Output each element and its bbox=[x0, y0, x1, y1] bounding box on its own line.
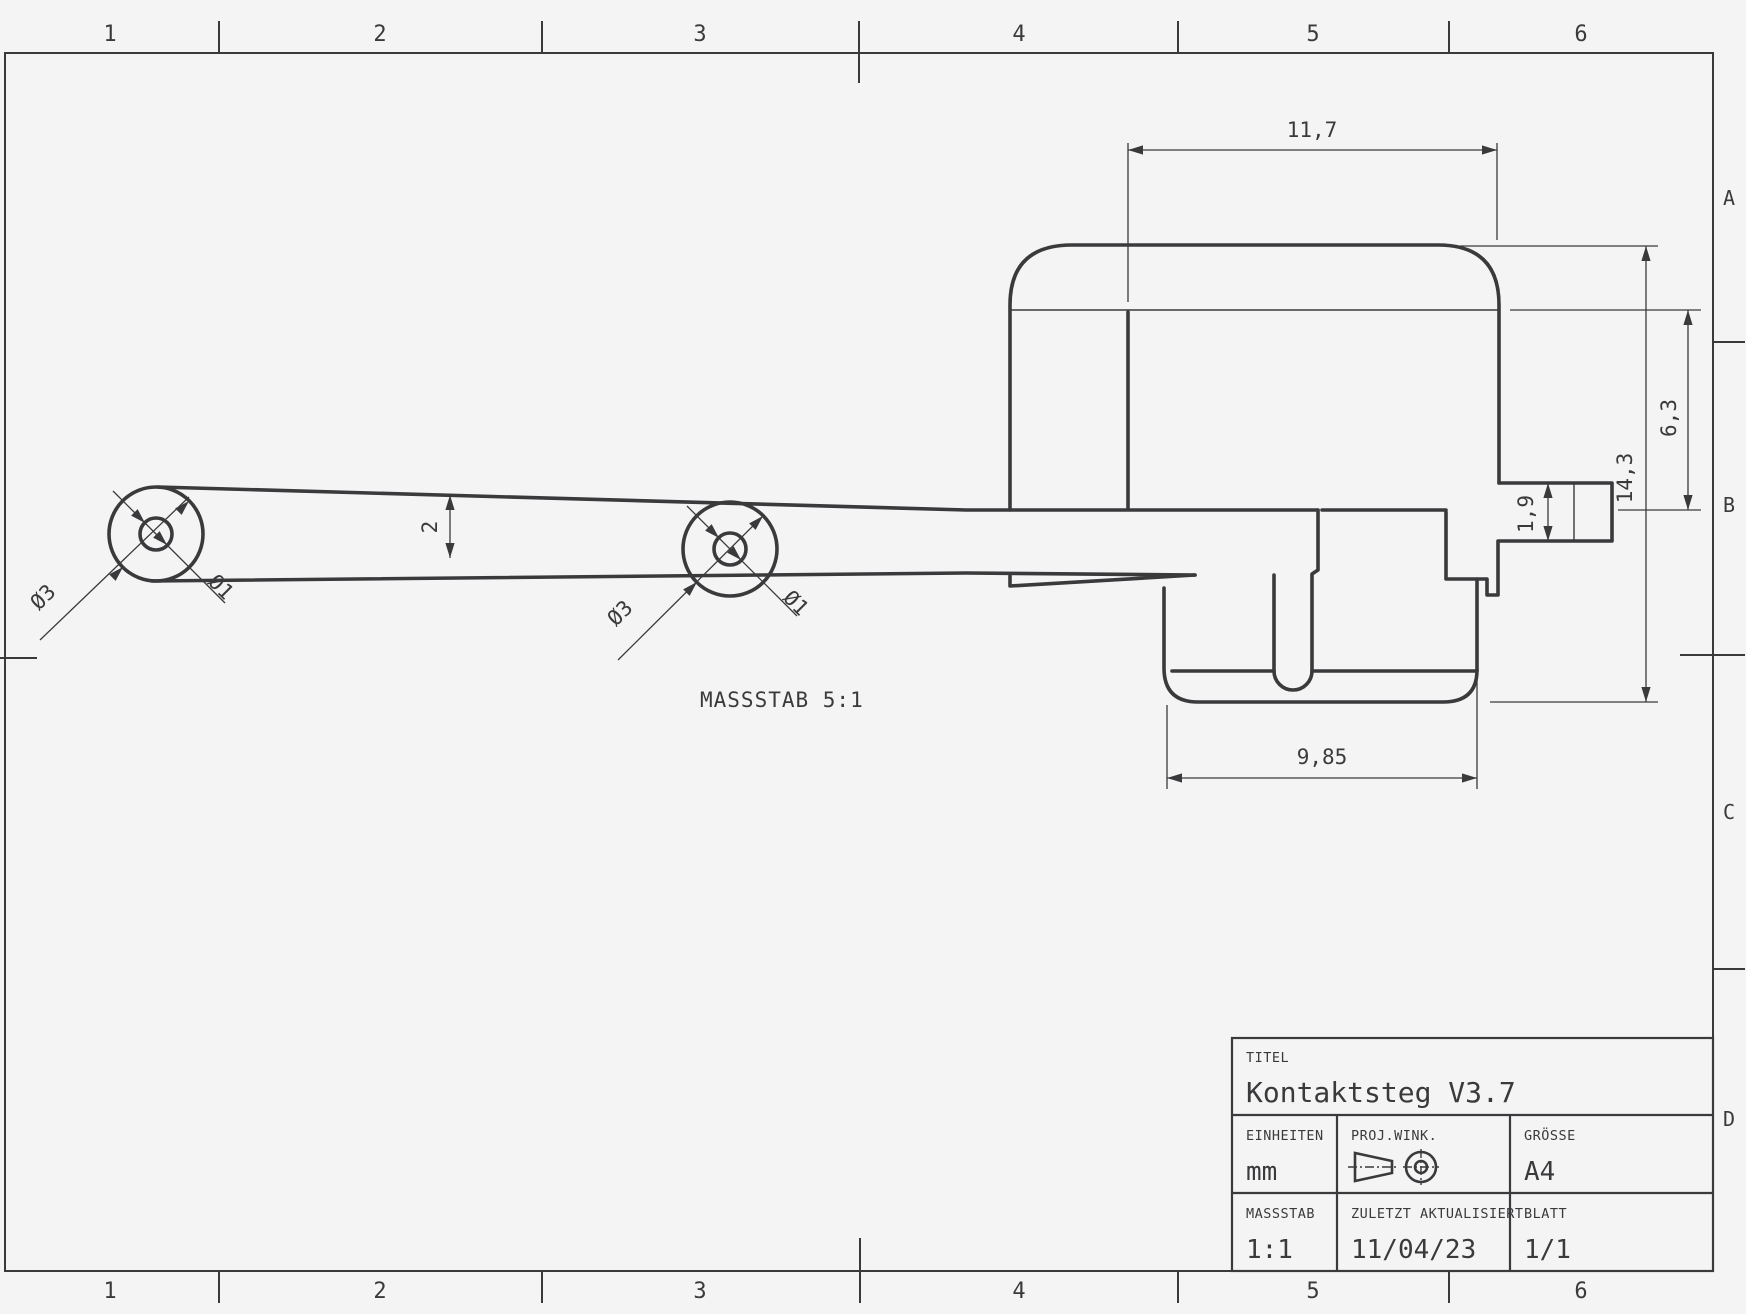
zone-col-label: 2 bbox=[373, 22, 386, 47]
zone-col-label: 5 bbox=[1306, 22, 1319, 47]
zone-col-label: 4 bbox=[1012, 22, 1025, 47]
zone-labels-right: A B C D bbox=[1723, 186, 1735, 1131]
view-scale-note: MASSSTAB 5:1 bbox=[700, 688, 864, 712]
arm-top-edge bbox=[158, 487, 1446, 510]
center-slot bbox=[1274, 510, 1318, 690]
part-thin-edges bbox=[1010, 310, 1574, 541]
dim-overall-height-label: 14,3 bbox=[1613, 453, 1637, 504]
flange-outline bbox=[1164, 588, 1477, 702]
housing-upper-outline bbox=[1010, 245, 1499, 510]
einheiten-value: mm bbox=[1246, 1157, 1277, 1187]
part-outline bbox=[109, 245, 1612, 702]
zone-col-label: 3 bbox=[693, 1279, 706, 1304]
zone-col-label: 6 bbox=[1574, 1279, 1587, 1304]
massstab-value: 1:1 bbox=[1246, 1235, 1293, 1265]
titel-label: TITEL bbox=[1246, 1050, 1289, 1066]
zone-row-label: C bbox=[1723, 800, 1735, 824]
arm-bottom-edge bbox=[152, 573, 1195, 581]
blatt-label: BLATT bbox=[1524, 1206, 1567, 1222]
zone-col-label: 2 bbox=[373, 1279, 386, 1304]
boss1-dia3-leader bbox=[40, 497, 189, 640]
zone-row-label: A bbox=[1723, 186, 1735, 210]
boss1-inner-dia-label: Ø1 bbox=[204, 570, 239, 605]
zone-col-label: 1 bbox=[103, 1279, 116, 1304]
border-frame bbox=[0, 21, 1745, 1303]
dim-tab-height-label: 1,9 bbox=[1514, 495, 1538, 533]
groesse-label: GRÖSSE bbox=[1524, 1126, 1576, 1144]
boss1-outer-dia-label: Ø3 bbox=[26, 580, 61, 615]
dim-arm-thickness-label: 2 bbox=[418, 521, 442, 534]
zone-col-label: 6 bbox=[1574, 22, 1587, 47]
zone-col-label: 4 bbox=[1012, 1279, 1025, 1304]
einheiten-label: EINHEITEN bbox=[1246, 1128, 1324, 1144]
zone-col-label: 3 bbox=[693, 22, 706, 47]
zone-col-label: 1 bbox=[103, 22, 116, 47]
dim-11-7-lines bbox=[1128, 143, 1497, 302]
massstab-label: MASSSTAB bbox=[1246, 1206, 1315, 1222]
projection-angle-icon bbox=[1348, 1149, 1439, 1185]
boss2-inner-dia-label: Ø1 bbox=[779, 586, 814, 621]
updated-label: ZULETZT AKTUALISIERT bbox=[1351, 1206, 1524, 1222]
zone-row-label: D bbox=[1723, 1107, 1735, 1131]
dim-top-width-label: 11,7 bbox=[1287, 118, 1338, 142]
groesse-value: A4 bbox=[1524, 1157, 1555, 1187]
zone-labels-top: 1 2 3 4 5 6 bbox=[103, 22, 1587, 47]
zone-col-label: 5 bbox=[1306, 1279, 1319, 1304]
drawing-canvas: 1 2 3 4 5 6 1 2 3 4 5 6 A B C D bbox=[0, 0, 1746, 1310]
boss2-outer-dia-label: Ø3 bbox=[603, 596, 638, 631]
drawing-sheet: 1 2 3 4 5 6 1 2 3 4 5 6 A B C D bbox=[0, 0, 1746, 1310]
updated-value: 11/04/23 bbox=[1351, 1235, 1476, 1265]
proj-wink-label: PROJ.WINK. bbox=[1351, 1128, 1437, 1144]
titel-value: Kontaktsteg V3.7 bbox=[1246, 1076, 1516, 1109]
dim-flange-width-label: 9,85 bbox=[1297, 745, 1348, 769]
zone-labels-bottom: 1 2 3 4 5 6 bbox=[103, 1279, 1587, 1304]
dim-upper-height-label: 6,3 bbox=[1657, 399, 1681, 437]
blatt-value: 1/1 bbox=[1524, 1235, 1571, 1265]
dim-9-85-lines bbox=[1167, 676, 1477, 789]
dimension-arrows bbox=[109, 145, 1692, 782]
dimension-lines bbox=[40, 143, 1701, 789]
zone-row-label: B bbox=[1723, 493, 1735, 517]
